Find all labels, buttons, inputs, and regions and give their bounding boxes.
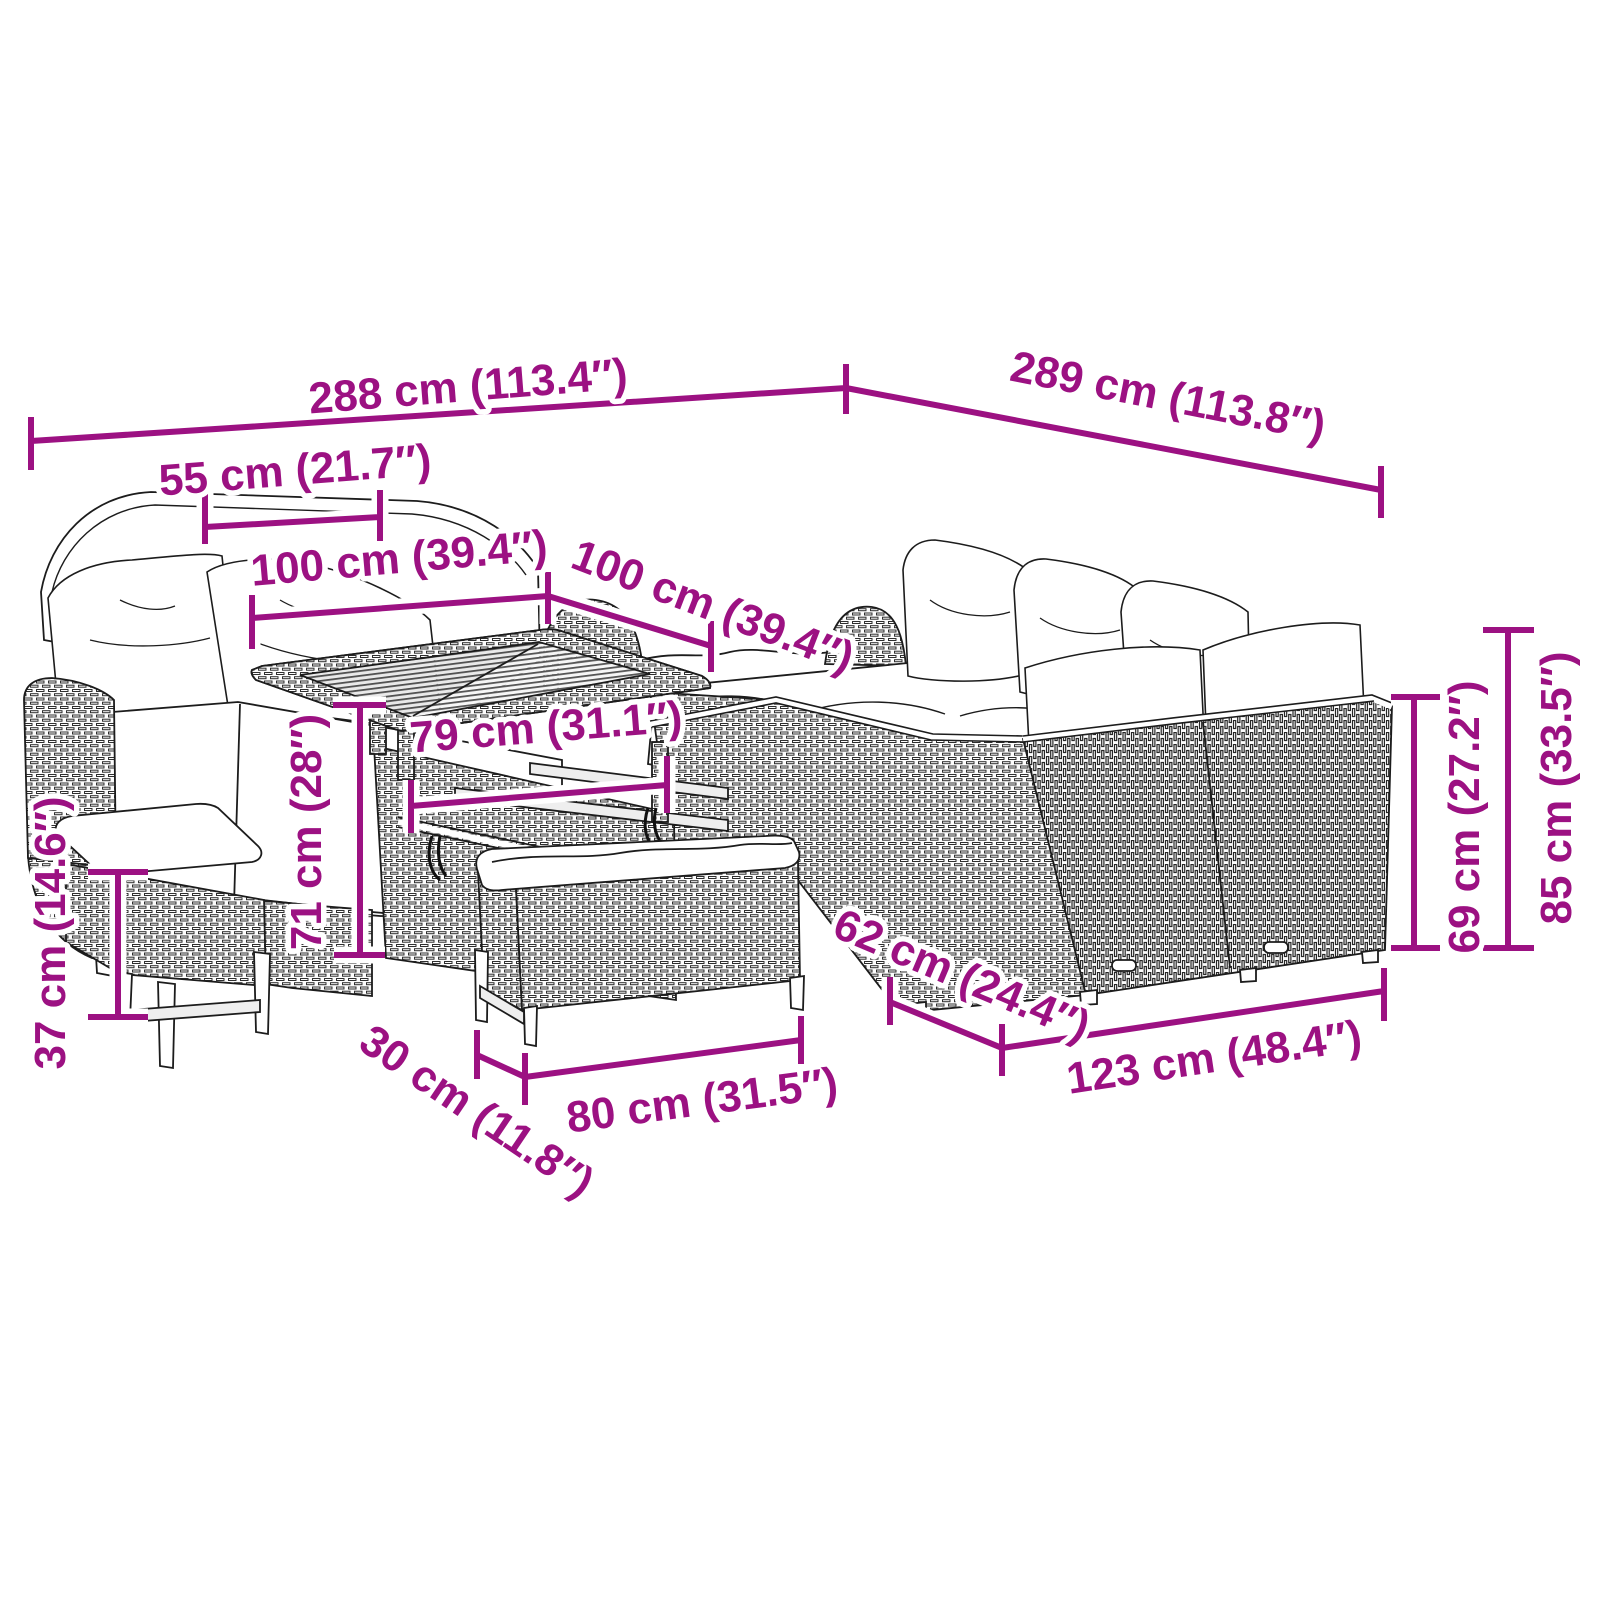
svg-text:85 cm (33.5″): 85 cm (33.5″) (1532, 651, 1581, 924)
svg-text:71 cm (28″): 71 cm (28″) (282, 714, 331, 950)
svg-text:37 cm (14.6″): 37 cm (14.6″) (26, 796, 75, 1069)
svg-text:69 cm (27.2″): 69 cm (27.2″) (1440, 680, 1489, 953)
